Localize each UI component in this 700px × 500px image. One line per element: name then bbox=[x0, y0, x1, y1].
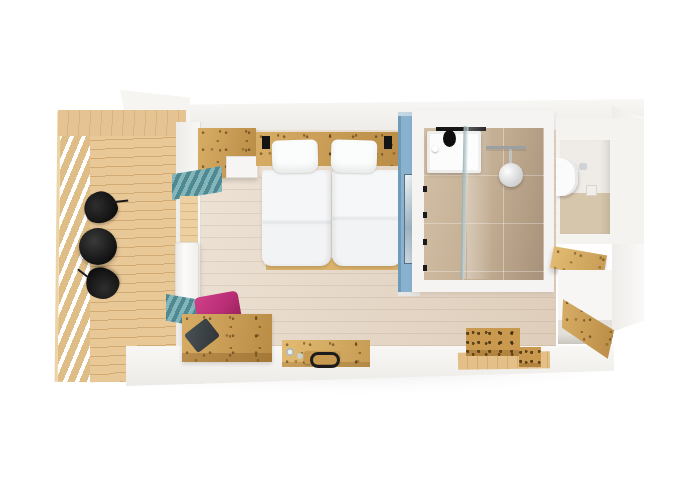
basin-drain bbox=[432, 146, 438, 152]
tray-handle bbox=[310, 352, 340, 368]
step-block-small bbox=[519, 347, 541, 367]
towel-rail bbox=[486, 146, 526, 149]
floor-plan-render bbox=[0, 0, 700, 500]
bed-right-duvet bbox=[332, 170, 401, 266]
black-faucet bbox=[443, 130, 456, 147]
balcony-top-board bbox=[58, 110, 186, 136]
balcony-table bbox=[79, 228, 117, 265]
wardrobe-shelf bbox=[226, 156, 258, 178]
balcony-door-leaf bbox=[175, 242, 199, 304]
bed-left-pillow bbox=[272, 139, 319, 173]
balcony-door-threshold bbox=[180, 196, 198, 244]
headboard-bracket-right bbox=[384, 136, 392, 149]
drinking-glasses bbox=[286, 348, 294, 356]
bed-right-pillow bbox=[331, 139, 378, 173]
rain-shower-head bbox=[499, 163, 523, 187]
glass-hinges bbox=[423, 186, 427, 192]
bed-left-duvet bbox=[262, 170, 331, 266]
paper-holder bbox=[586, 185, 597, 196]
flush-plate bbox=[579, 163, 587, 170]
headboard-bracket-left bbox=[262, 136, 270, 149]
step-block-large bbox=[466, 328, 520, 356]
